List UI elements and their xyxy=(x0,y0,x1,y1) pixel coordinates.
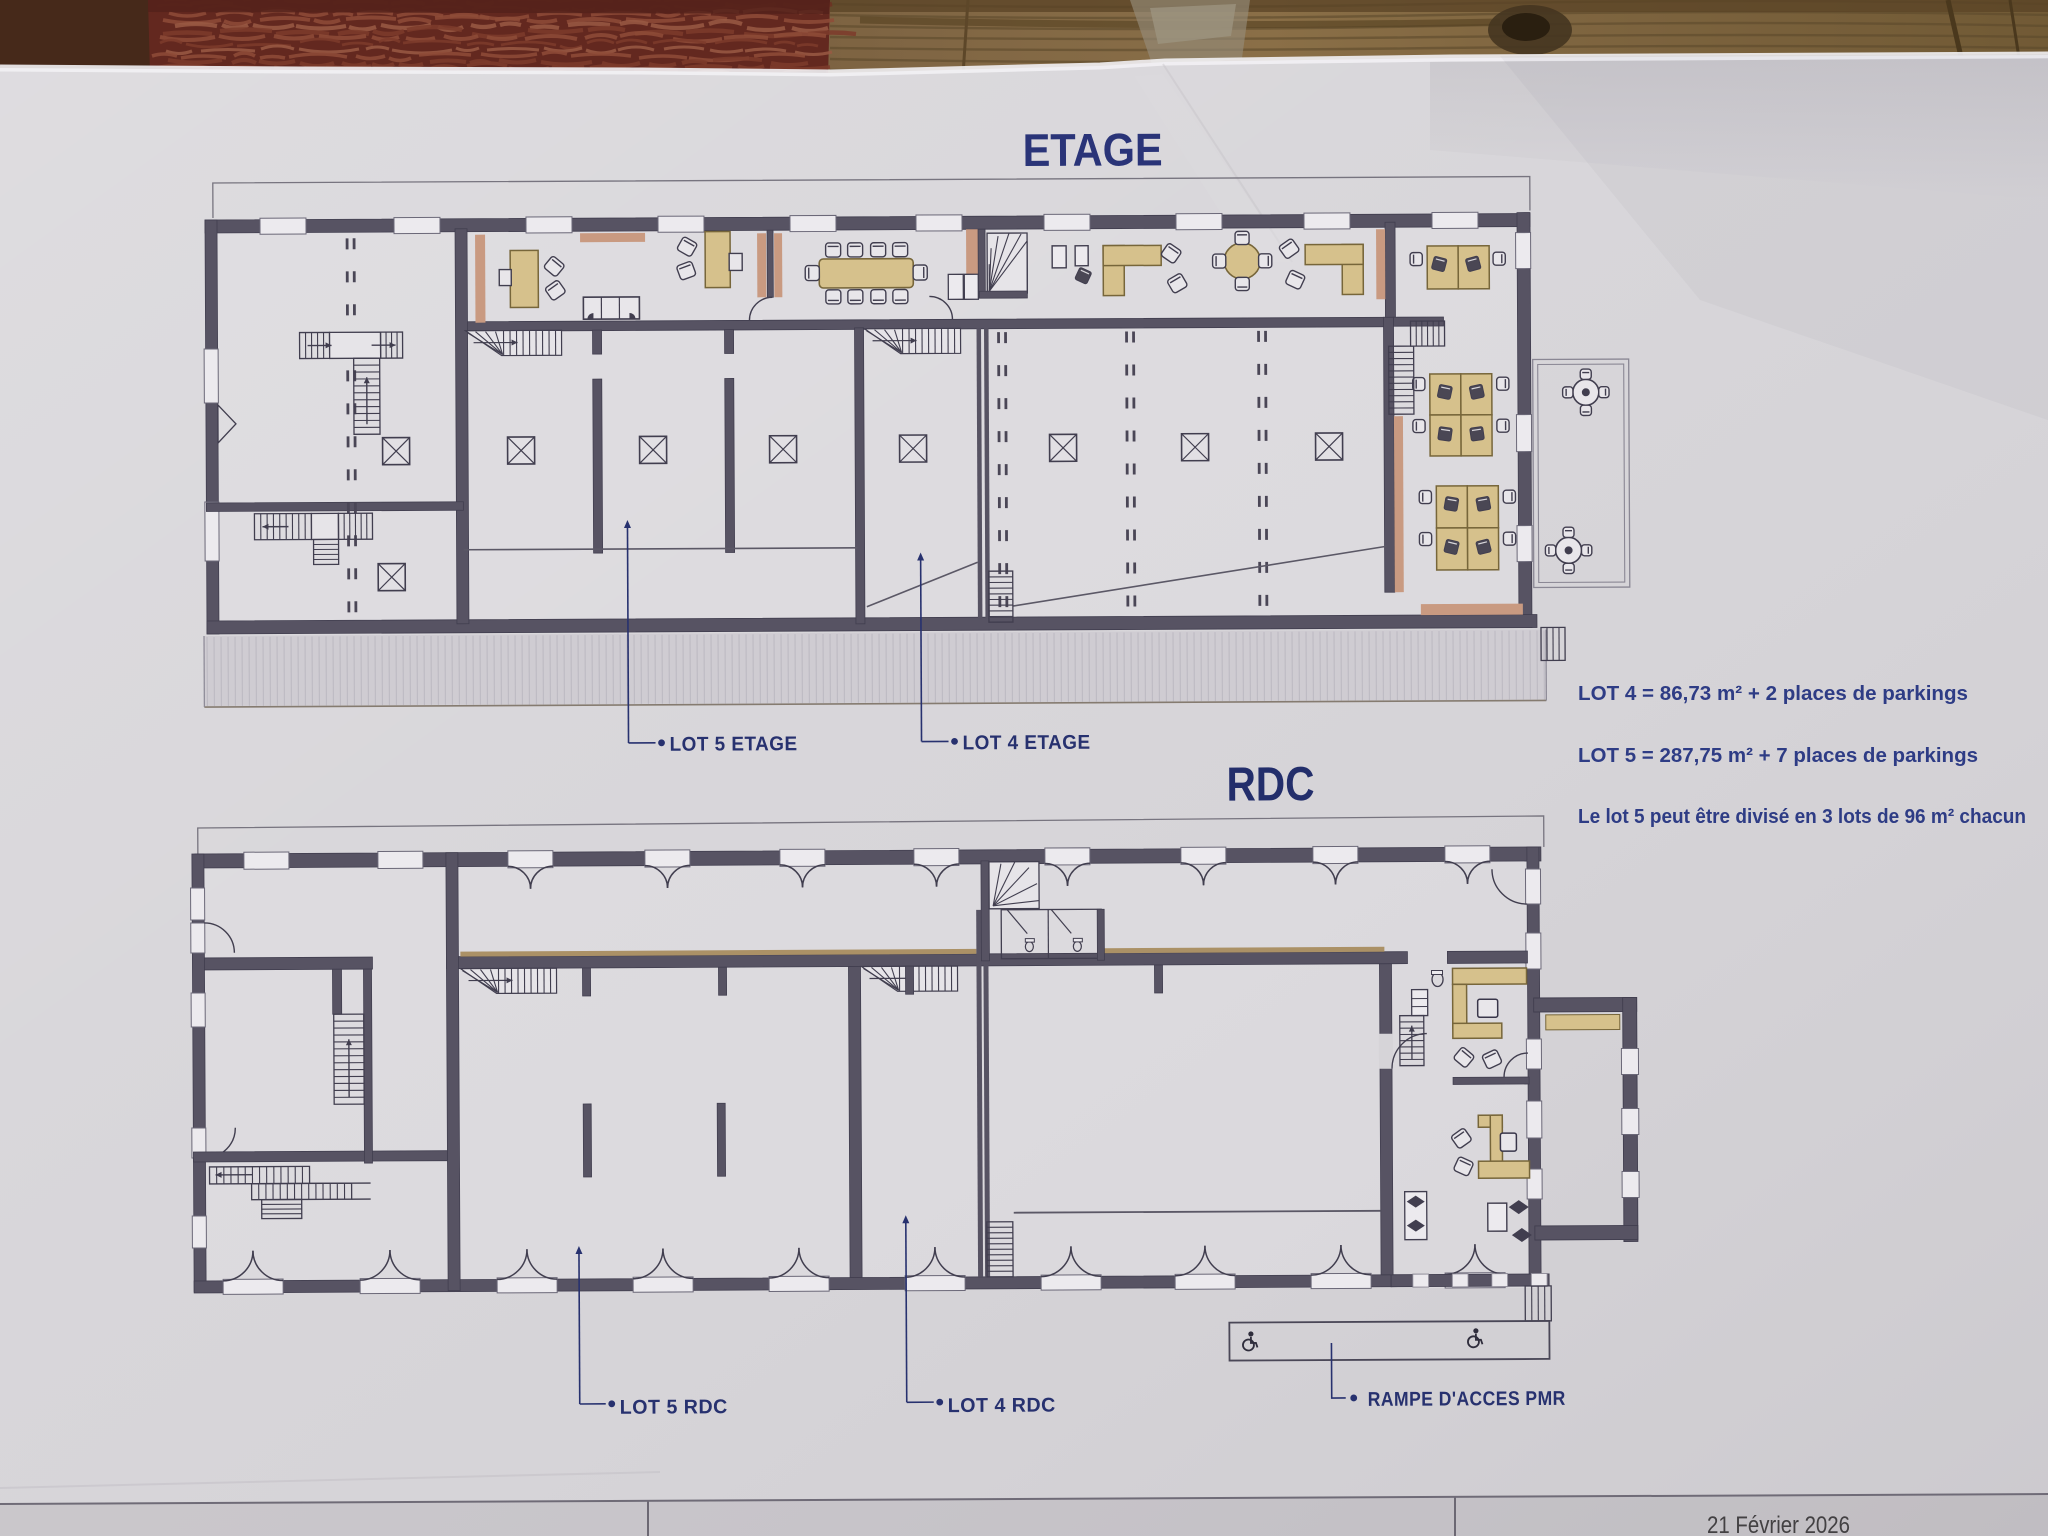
svg-text:LOT 5 = 287,75 m² + 7 pla: LOT 5 = 287,75 m² + 7 places de parkings xyxy=(1578,745,1978,767)
svg-text:RDC: RDC xyxy=(1226,758,1314,811)
svg-text:LOT 5 RDC: LOT 5 RDC xyxy=(620,1396,728,1419)
svg-text:Le lot 5 peut être divisé en 3: Le lot 5 peut être divisé en 3 lots de 9… xyxy=(1578,806,2026,828)
svg-text:LOT 4 ETAGE: LOT 4 ETAGE xyxy=(962,732,1090,755)
svg-text:ETAGE: ETAGE xyxy=(1023,123,1163,176)
svg-text:LOT 4 = 86,73 m² + 2 plac: LOT 4 = 86,73 m² + 2 places de parkings xyxy=(1578,683,1968,705)
svg-text:RAMPE D'ACCES PMR: RAMPE D'ACCES PMR xyxy=(1368,1388,1566,1411)
svg-text:LOT 5 ETAGE: LOT 5 ETAGE xyxy=(669,733,797,756)
svg-text:LOT 4 RDC: LOT 4 RDC xyxy=(948,1394,1056,1417)
svg-text:21 Février 2026: 21 Février 2026 xyxy=(1707,1512,1850,1536)
